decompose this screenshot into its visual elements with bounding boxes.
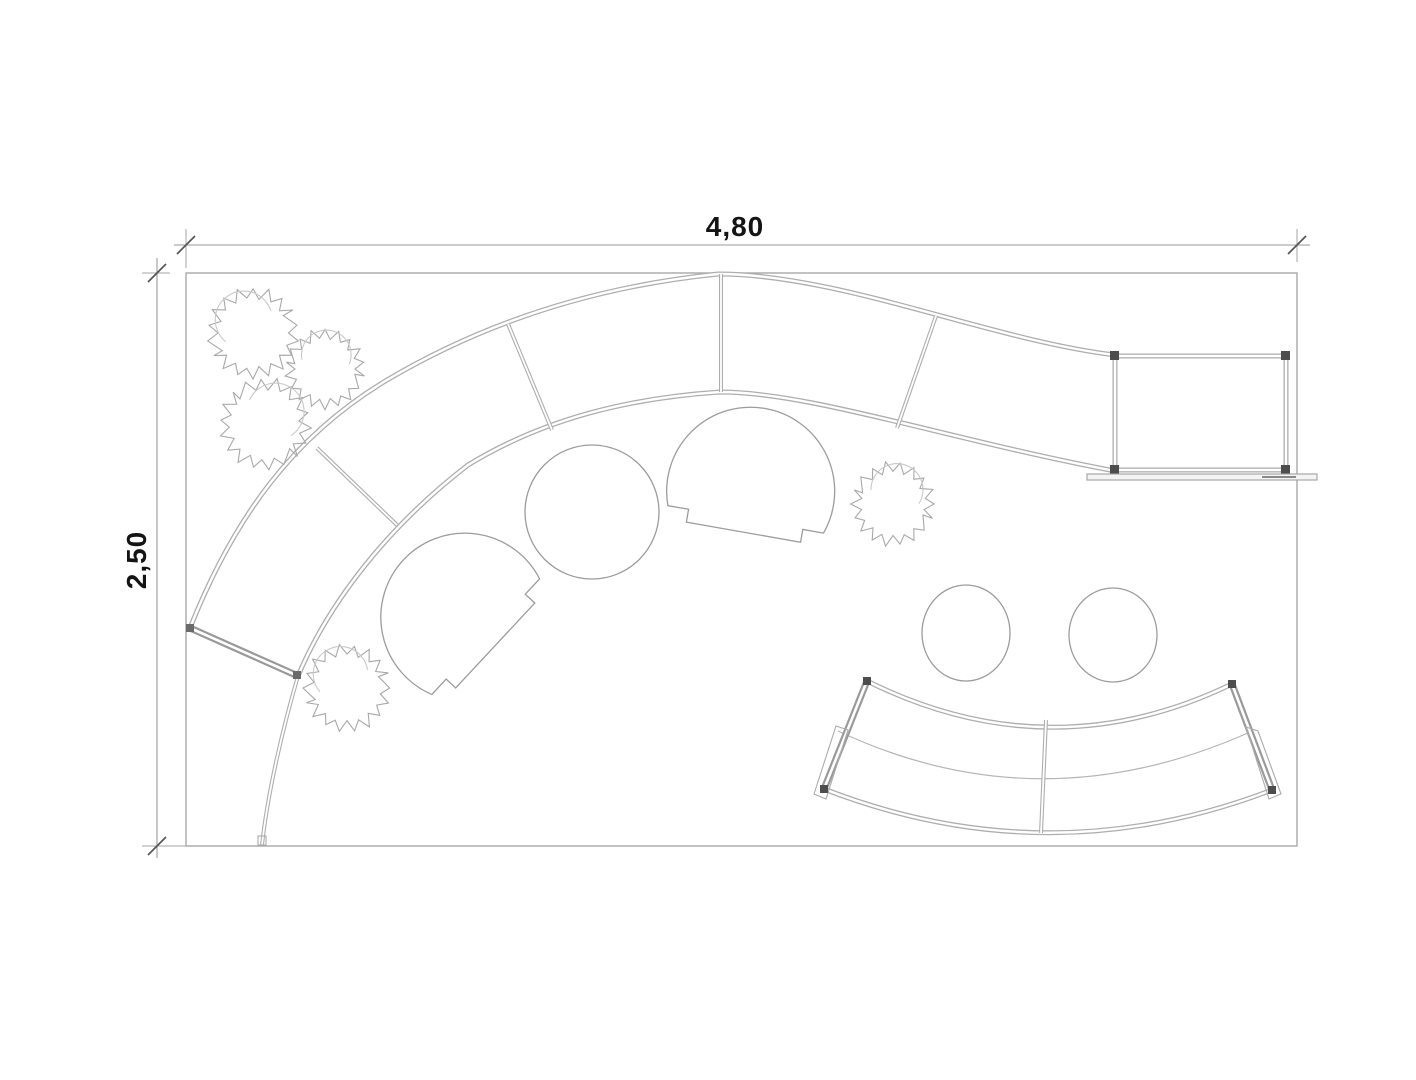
round-table bbox=[525, 445, 659, 579]
counter-post bbox=[1268, 786, 1276, 794]
width-dimension-label: 4,80 bbox=[706, 211, 765, 242]
curved-counter bbox=[814, 677, 1281, 833]
plant-icon bbox=[837, 448, 950, 561]
armchair bbox=[346, 498, 552, 706]
dimension-width: 4,80 bbox=[174, 211, 1310, 268]
dimension-height: 2,50 bbox=[121, 258, 186, 858]
curved-wall-inner-arc bbox=[298, 392, 1115, 676]
lounge-furniture bbox=[346, 394, 1157, 707]
counter-outer-arc bbox=[824, 789, 1272, 833]
booth-boundary bbox=[186, 273, 1297, 846]
stool bbox=[922, 585, 1010, 681]
armchair bbox=[661, 394, 848, 547]
cabin-corner-post bbox=[1281, 351, 1290, 360]
plant-icon bbox=[201, 280, 306, 385]
wall-post bbox=[293, 671, 301, 679]
counter-end-cap bbox=[824, 681, 867, 789]
cabin-walls bbox=[1115, 356, 1286, 470]
cabin-corner-post bbox=[1110, 351, 1119, 360]
counter-post bbox=[820, 785, 828, 793]
curved-wall-outer-arc bbox=[190, 274, 1115, 628]
counter-post bbox=[1228, 680, 1236, 688]
floorplan-canvas: 4,80 2,50 bbox=[0, 0, 1416, 1080]
wall-dividers bbox=[317, 274, 936, 525]
plant-icon bbox=[270, 314, 381, 425]
counter-post bbox=[863, 677, 871, 685]
plants bbox=[201, 280, 950, 744]
cabin-corner-post bbox=[1110, 465, 1119, 474]
wall-extension-arc bbox=[262, 676, 298, 845]
wall-post bbox=[186, 624, 194, 632]
floorplan-page: 4,80 2,50 bbox=[0, 0, 1416, 1080]
curved-wall-inner-arc bbox=[298, 392, 1115, 676]
cabin-walls bbox=[1115, 356, 1286, 470]
curved-wall bbox=[186, 274, 1115, 845]
stool bbox=[1069, 588, 1157, 682]
cabin-room bbox=[1087, 351, 1317, 480]
wall-end-cap bbox=[190, 628, 298, 676]
cabin-corner-post bbox=[1281, 465, 1290, 474]
plant-icon bbox=[216, 376, 315, 474]
height-dimension-label: 2,50 bbox=[121, 531, 152, 590]
